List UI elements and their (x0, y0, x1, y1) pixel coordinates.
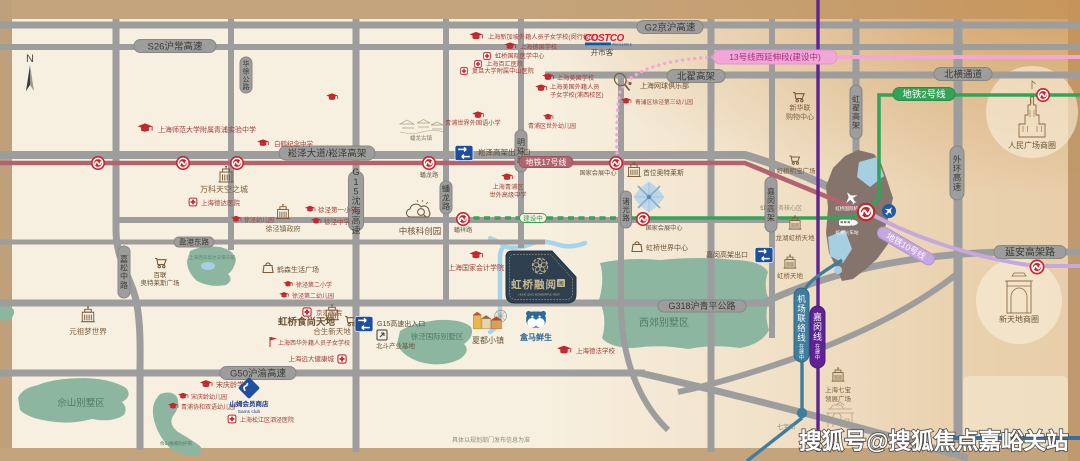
svg-text:复旦大学附属中山医院: 复旦大学附属中山医院 (472, 67, 534, 75)
svg-text:路: 路 (120, 280, 128, 290)
svg-text:人民广场商圈: 人民广场商圈 (1008, 140, 1056, 150)
svg-text:地铁2号线: 地铁2号线 (902, 88, 946, 100)
svg-text:青浦世界外国语小学: 青浦世界外国语小学 (445, 119, 501, 127)
svg-text:山姆会员商店: 山姆会员商店 (230, 399, 270, 408)
svg-text:建设中: 建设中 (523, 213, 543, 222)
svg-text:虹桥火车站: 虹桥火车站 (836, 229, 859, 236)
svg-text:络: 络 (797, 323, 806, 333)
svg-text:N: N (26, 53, 34, 65)
svg-text:龙湖虹桥天地: 龙湖虹桥天地 (776, 233, 816, 242)
svg-text:国家会展中心: 国家会展中心 (579, 169, 616, 177)
svg-text:S26沪常高速: S26沪常高速 (148, 40, 203, 52)
svg-text:盒马鲜生: 盒马鲜生 (519, 332, 552, 342)
svg-text:虹桥明宝广场: 虹桥明宝广场 (777, 166, 817, 175)
svg-text:徐泾镇政府: 徐泾镇政府 (266, 224, 301, 233)
svg-text:架: 架 (852, 121, 860, 130)
svg-text:子女学校(浦西校区): 子女学校(浦西校区) (550, 91, 604, 99)
svg-text:上海德法学校: 上海德法学校 (576, 346, 616, 355)
svg-text:青浦协和双语幼儿园: 青浦协和双语幼儿园 (181, 403, 235, 411)
svg-text:龙: 龙 (442, 192, 450, 202)
svg-text:Sams club: Sams club (238, 409, 261, 415)
svg-text:上海百汇医院: 上海百汇医院 (486, 60, 523, 68)
svg-text:北斗产业基地: 北斗产业基地 (376, 341, 416, 350)
svg-text:虹桥食尚天地: 虹桥食尚天地 (278, 316, 336, 328)
svg-text:万科天空之城: 万科天空之城 (200, 184, 248, 194)
svg-text:青浦区世外幼儿园: 青浦区世外幼儿园 (528, 122, 576, 130)
svg-text:青浦区徐泾第三幼儿园: 青浦区徐泾第三幼儿园 (635, 98, 693, 106)
svg-text:首位奥特莱斯: 首位奥特莱斯 (643, 168, 684, 177)
svg-text:新天地商圈: 新天地商圈 (999, 314, 1039, 324)
svg-text:中核科创园: 中核科创园 (399, 226, 442, 236)
svg-text:闵: 闵 (813, 321, 822, 332)
svg-text:速: 速 (953, 182, 962, 192)
svg-text:嘉闵高架出口: 嘉闵高架出口 (706, 250, 748, 259)
svg-text:西郊别墅区: 西郊别墅区 (639, 316, 689, 329)
svg-text:上海新加坡外籍人员子女学校(闵行校区): 上海新加坡外籍人员子女学校(闵行校区) (488, 33, 597, 41)
svg-text:沈: 沈 (351, 195, 360, 206)
svg-text:G2京沪高速: G2京沪高速 (645, 21, 696, 33)
svg-text:徐: 徐 (243, 67, 250, 76)
svg-text:闵: 闵 (767, 195, 775, 205)
svg-text:上海松江区泗泾医院: 上海松江区泗泾医院 (240, 416, 294, 424)
svg-text:元祖梦世界: 元祖梦世界 (69, 326, 107, 336)
svg-text:上海西郊高尔夫俱乐部: 上海西郊高尔夫俱乐部 (189, 254, 235, 261)
svg-text:路: 路 (622, 212, 630, 222)
svg-text:HONG QIAO WONDERFUL VIEW: HONG QIAO WONDERFUL VIEW (518, 293, 560, 297)
svg-text:虹桥世界中心: 虹桥世界中心 (646, 243, 688, 252)
svg-text:国家会展中心: 国家会展中心 (645, 224, 682, 232)
svg-text:华: 华 (243, 59, 250, 68)
svg-text:徐泾第二幼儿园: 徐泾第二幼儿园 (292, 292, 334, 300)
svg-text:上海七宝: 上海七宝 (825, 385, 852, 394)
svg-text:徐泾第二小学: 徐泾第二小学 (296, 281, 332, 289)
svg-text:虹桥天地: 虹桥天地 (777, 271, 804, 280)
svg-text:崧泽高架出入口: 崧泽高架出入口 (478, 147, 531, 157)
svg-text:WHOLESALE: WHOLESALE (612, 43, 632, 47)
svg-text:上海国家会计学院: 上海国家会计学院 (448, 263, 504, 272)
svg-text:公: 公 (243, 75, 250, 83)
svg-text:蟠: 蟠 (442, 184, 450, 194)
svg-text:虹桥国际医学中心: 虹桥国际医学中心 (495, 52, 545, 60)
svg-text:北横通道: 北横通道 (944, 68, 983, 80)
svg-text:松: 松 (120, 263, 128, 273)
svg-text:具体以规划部门发布信息为准: 具体以规划部门发布信息为准 (452, 436, 530, 444)
svg-text:中: 中 (815, 354, 820, 361)
svg-text:开市客: 开市客 (591, 47, 614, 57)
svg-text:上海网球俱乐部: 上海网球俱乐部 (640, 81, 689, 90)
svg-text:鹤森生活广场: 鹤森生活广场 (277, 265, 319, 274)
svg-text:嘉: 嘉 (120, 254, 128, 264)
svg-text:上海德国学校: 上海德国学校 (520, 43, 557, 51)
svg-text:蟠龙路: 蟠龙路 (420, 171, 439, 179)
svg-text:13号线西延伸段(建设中): 13号线西延伸段(建设中) (729, 52, 821, 62)
svg-text:虹: 虹 (852, 95, 860, 104)
svg-text:上海师范大学附属青浦实验中学: 上海师范大学附属青浦实验中学 (158, 125, 256, 134)
svg-text:搜狐号@搜狐焦点嘉峪关站: 搜狐号@搜狐焦点嘉峪关站 (799, 428, 1069, 454)
svg-text:中: 中 (120, 271, 128, 281)
svg-text:徐泾幼儿园: 徐泾幼儿园 (244, 216, 274, 224)
svg-text:G318沪青平公路: G318沪青平公路 (668, 300, 735, 311)
svg-text:上海西华外籍人员子女学校: 上海西华外籍人员子女学校 (278, 339, 350, 347)
svg-text:机: 机 (797, 294, 806, 304)
svg-text:佘山别墅区: 佘山别墅区 (57, 397, 105, 409)
svg-text:速: 速 (351, 225, 360, 235)
svg-text:京汇医院: 京汇医院 (316, 308, 343, 317)
svg-text:百联: 百联 (154, 270, 168, 279)
svg-text:宋庆龄幼儿园: 宋庆龄幼儿园 (191, 393, 227, 401)
svg-text:白鹤纪念中学: 白鹤纪念中学 (274, 139, 314, 148)
svg-text:明: 明 (517, 138, 525, 147)
svg-text:世外高级中学: 世外高级中学 (489, 191, 526, 199)
svg-text:领展广场: 领展广场 (825, 394, 852, 403)
svg-text:购物中心: 购物中心 (786, 112, 814, 121)
svg-text:崧泽大道/崧泽高架: 崧泽大道/崧泽高架 (288, 147, 367, 159)
svg-text:5: 5 (353, 187, 358, 197)
svg-text:上海美国外籍人员: 上海美国外籍人员 (550, 83, 600, 91)
svg-text:路: 路 (243, 82, 250, 91)
svg-text:架: 架 (767, 213, 775, 222)
svg-text:线: 线 (813, 331, 822, 342)
svg-text:上海美国学校: 上海美国学校 (557, 74, 594, 82)
svg-text:奥特莱斯广场: 奥特莱斯广场 (141, 278, 181, 287)
svg-text:蟠龙古镇: 蟠龙古镇 (410, 134, 433, 142)
svg-text:G15高速出入口: G15高速出入口 (377, 319, 425, 328)
svg-text:G50沪渝高速: G50沪渝高速 (230, 367, 286, 379)
svg-text:虹桥商务核心区: 虹桥商务核心区 (760, 204, 802, 212)
svg-text:徐泾中学: 徐泾中学 (324, 217, 351, 226)
svg-text:上海青浦区: 上海青浦区 (493, 183, 524, 191)
svg-text:新华联: 新华联 (790, 103, 811, 112)
svg-text:上海德达医院: 上海德达医院 (201, 198, 241, 207)
svg-text:佘山植被防护带: 佘山植被防护带 (160, 440, 193, 447)
svg-text:嘉: 嘉 (813, 311, 822, 322)
svg-text:阅: 阅 (558, 280, 564, 288)
svg-text:中: 中 (799, 354, 804, 361)
svg-text:高: 高 (852, 111, 860, 121)
svg-text:1: 1 (353, 177, 358, 187)
svg-text:徐泾国际别墅区: 徐泾国际别墅区 (411, 331, 464, 341)
svg-text:盈港东路: 盈港东路 (179, 237, 209, 247)
svg-text:路: 路 (442, 201, 450, 211)
svg-text:蟠祥路: 蟠祥路 (454, 226, 473, 234)
svg-text:线: 线 (797, 332, 806, 342)
svg-text:嘉: 嘉 (767, 186, 775, 196)
svg-text:地铁17号线: 地铁17号线 (526, 157, 567, 167)
svg-text:上海远大健康城: 上海远大健康城 (289, 354, 335, 363)
svg-text:夏都小镇: 夏都小镇 (472, 335, 504, 345)
svg-text:虹桥融阅: 虹桥融阅 (511, 278, 557, 291)
svg-text:延安高架路: 延安高架路 (1005, 246, 1055, 259)
svg-text:七宝站: 七宝站 (777, 423, 795, 431)
svg-text:高: 高 (351, 215, 360, 226)
svg-text:联: 联 (797, 313, 806, 323)
svg-text:场: 场 (797, 304, 806, 314)
svg-text:北翟高架: 北翟高架 (677, 70, 716, 82)
svg-text:徐泾第一小学: 徐泾第一小学 (318, 205, 358, 214)
svg-text:G: G (352, 167, 359, 177)
